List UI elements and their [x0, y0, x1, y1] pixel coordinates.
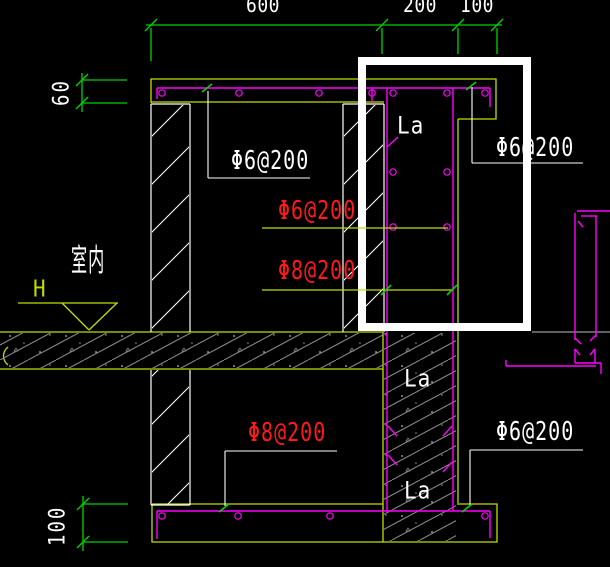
top-dimension-lines: [145, 19, 503, 61]
dim-text-60-left: 60: [51, 79, 73, 106]
slab-top-rebar-label: Φ6@200: [231, 147, 309, 173]
cad-drawing-canvas[interactable]: 600 200 100 60 100 室内 H La La La Φ6@200 …: [0, 0, 610, 567]
parapet-rebar-label: Φ6@200: [496, 134, 574, 160]
rebar-shape-diagram: [506, 211, 610, 374]
bottom-slab-main-rebar-label: Φ8@200: [248, 419, 326, 445]
wall-horizontal-rebar-label: Φ6@200: [278, 197, 356, 223]
dim-text-100-top: 100: [460, 0, 494, 17]
interior-label: 室内: [71, 246, 105, 277]
left-dimension-100: [77, 496, 128, 551]
bottom-slab-edge-rebar-label: Φ6@200: [496, 418, 574, 444]
anchorage-label-middle: La: [404, 367, 431, 391]
dim-text-100-left: 100: [47, 506, 69, 546]
elevation-symbol-label: H: [33, 278, 46, 301]
wall-vertical-rebar-label: Φ8@200: [278, 257, 356, 283]
anchorage-label-bottom: La: [404, 479, 431, 503]
left-dimension-60: [76, 73, 127, 112]
dim-text-200: 200: [403, 0, 437, 17]
elevation-marker: [18, 303, 118, 330]
dim-text-600: 600: [246, 0, 280, 17]
anchorage-label-top: La: [397, 114, 424, 138]
